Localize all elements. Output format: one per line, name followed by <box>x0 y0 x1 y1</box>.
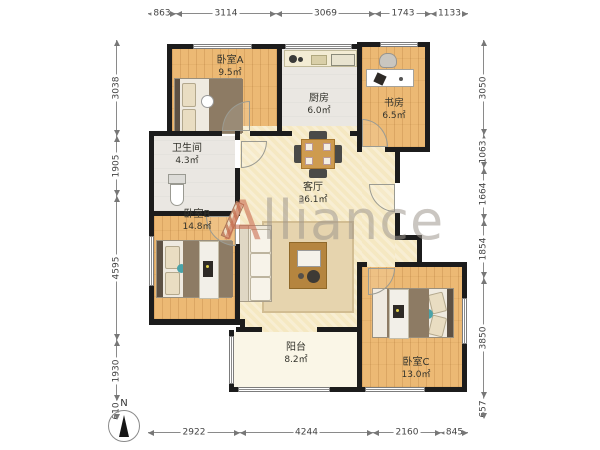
dim-left-1: 3038 <box>110 40 123 136</box>
dim-value: 657 <box>479 398 488 419</box>
wall <box>149 131 222 136</box>
room-label-kitchen: 厨房 6.0㎡ <box>277 93 361 117</box>
dim-left-4: 1930 <box>110 340 123 401</box>
wall <box>395 147 400 183</box>
wall <box>235 131 240 140</box>
kitchen-counter <box>284 50 357 67</box>
bed-b <box>156 240 232 298</box>
wall <box>277 44 282 136</box>
indicator-dot <box>206 265 209 268</box>
decor-item <box>307 270 320 283</box>
compass-circle <box>108 410 140 442</box>
sink-icon <box>331 54 355 66</box>
room-name: 卫生间 <box>145 143 229 156</box>
room-label-bedroom-a: 卧室A 9.5㎡ <box>188 55 272 79</box>
tray <box>297 250 321 267</box>
toilet-tank <box>168 174 186 184</box>
wall <box>149 319 245 325</box>
place-setting <box>323 157 331 165</box>
dining-chair <box>309 169 327 178</box>
stove-burner-icon <box>289 55 297 63</box>
room-label-study: 书房 6.5㎡ <box>352 98 436 122</box>
dim-right-2: 1063 <box>477 135 490 168</box>
dim-bottom-3: 2160 <box>373 426 441 439</box>
dim-top-5: 1133 <box>431 7 468 20</box>
desk-lamp-icon <box>399 77 403 81</box>
bed-headboard <box>447 289 453 337</box>
dim-value: 3850 <box>479 325 488 352</box>
sofa-cushion <box>250 253 271 277</box>
dim-value: 1743 <box>390 9 417 18</box>
window <box>238 387 330 392</box>
room-area: 6.0㎡ <box>277 106 361 117</box>
dim-value: 863 <box>151 9 172 18</box>
watermark-lead: A <box>224 189 262 252</box>
stool <box>201 95 214 108</box>
room-name: 厨房 <box>277 93 361 106</box>
dim-value: 1133 <box>436 9 463 18</box>
bed-pillow <box>182 109 196 133</box>
range-hood-icon <box>311 55 327 65</box>
dim-right-6: 657 <box>477 398 490 419</box>
dim-top-2: 3114 <box>176 7 276 20</box>
desk-chair <box>379 53 397 68</box>
dim-value: 3069 <box>312 9 339 18</box>
toilet-bowl <box>170 184 184 206</box>
watermark-rest: lliance <box>262 189 444 252</box>
decor-item <box>298 273 304 279</box>
wall <box>317 327 362 332</box>
window <box>229 336 234 384</box>
window <box>285 44 352 49</box>
dim-value: 4595 <box>112 255 121 282</box>
indicator-dot <box>396 309 399 312</box>
dim-value: 1930 <box>112 357 121 384</box>
dim-value: 1905 <box>112 153 121 180</box>
tv-icon <box>203 261 213 277</box>
dim-value: 1854 <box>479 236 488 263</box>
room-name: 阳台 <box>254 342 338 355</box>
room-area: 9.5㎡ <box>188 68 272 79</box>
dim-value: 4244 <box>293 428 320 437</box>
dim-value: 2922 <box>181 428 208 437</box>
wall <box>167 44 172 136</box>
desk <box>366 69 414 87</box>
room-area: 8.2㎡ <box>254 355 338 366</box>
dim-top-1: 863 <box>148 7 176 20</box>
dim-value: 3050 <box>479 74 488 101</box>
dim-value: 3038 <box>112 75 121 102</box>
wall <box>240 319 245 332</box>
dim-bottom-1: 2922 <box>148 426 240 439</box>
compass-needle-icon <box>119 415 129 437</box>
dim-left-3: 4595 <box>110 196 123 340</box>
dim-value: 3114 <box>213 9 240 18</box>
room-area: 6.5㎡ <box>352 111 436 122</box>
compass: N <box>106 398 142 448</box>
wall <box>395 262 467 267</box>
room-name: 卧室A <box>188 55 272 68</box>
room-name: 卧室C <box>374 357 458 370</box>
dim-right-1: 3050 <box>477 40 490 135</box>
monitor-icon <box>373 72 386 85</box>
room-label-bedroom-c: 卧室C 13.0㎡ <box>374 357 458 381</box>
window <box>365 387 425 392</box>
dim-right-4: 1854 <box>477 220 490 278</box>
window <box>380 42 418 47</box>
dim-right-5: 3850 <box>477 278 490 398</box>
bed-pillow <box>182 83 196 107</box>
room-name: 书房 <box>352 98 436 111</box>
window <box>193 44 252 49</box>
bed-headboard <box>157 241 163 297</box>
wall <box>282 131 292 136</box>
dim-bottom-4: 845 <box>441 426 468 439</box>
dim-value: 1063 <box>479 138 488 165</box>
wall <box>385 147 430 152</box>
dining-table <box>301 139 335 169</box>
bed-pillow <box>165 272 180 295</box>
window <box>462 298 467 344</box>
wall <box>425 42 430 152</box>
compass-north-label: N <box>106 398 142 409</box>
room-label-balcony: 阳台 8.2㎡ <box>254 342 338 366</box>
place-setting <box>305 157 313 165</box>
place-setting <box>323 143 331 151</box>
sofa-cushion <box>250 277 271 301</box>
dim-value: 2160 <box>394 428 421 437</box>
dim-left-2: 1905 <box>110 136 123 196</box>
watermark: Alliance <box>224 194 444 248</box>
room-label-bathroom: 卫生间 4.3㎡ <box>145 143 229 167</box>
room-area: 4.3㎡ <box>145 156 229 167</box>
bed-headboard <box>175 79 180 133</box>
floorplan-canvas: 863 3114 3069 1743 1133 2922 4244 2160 8… <box>0 0 600 450</box>
dim-right-3: 1664 <box>477 168 490 220</box>
dim-value: 845 <box>444 428 465 437</box>
window <box>149 236 154 286</box>
room-area: 13.0㎡ <box>374 370 458 381</box>
dim-top-4: 1743 <box>375 7 431 20</box>
stove-burner-icon <box>298 57 303 62</box>
dim-value: 1664 <box>479 181 488 208</box>
dim-top-3: 3069 <box>276 7 375 20</box>
bed-c <box>372 288 454 338</box>
wall <box>235 244 240 324</box>
place-setting <box>305 143 313 151</box>
dim-bottom-2: 4244 <box>240 426 373 439</box>
